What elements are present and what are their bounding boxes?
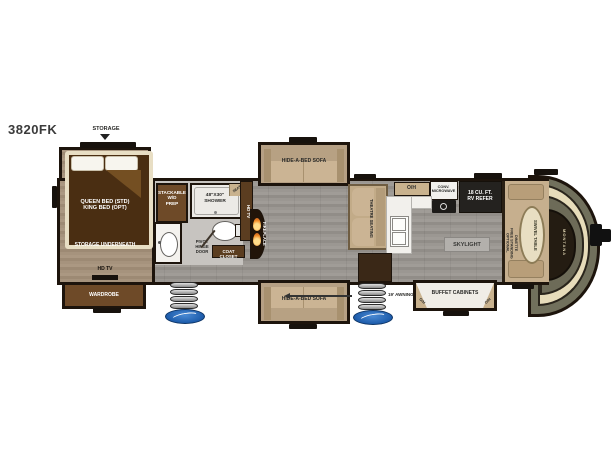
step — [170, 282, 198, 288]
slide-handle — [474, 173, 502, 179]
sofa-arm — [264, 149, 271, 182]
swivel-table-label: SWIVEL TABLE — [528, 210, 537, 260]
tv-icon — [92, 275, 118, 280]
model-number: 3820FK — [8, 122, 57, 137]
fireplace: FIREPLACE — [250, 209, 266, 259]
wardrobe-slideout: WARDROBE — [62, 282, 146, 309]
sofa-bottom-label: HIDE-A-BED SOFA — [264, 297, 344, 303]
entry-steps — [358, 283, 386, 308]
coat-closet: COAT CLOSET — [212, 245, 245, 258]
step — [170, 289, 198, 295]
slide-handle — [80, 142, 136, 148]
hitch-pin-tip — [600, 229, 611, 242]
shower-drain-icon — [214, 211, 217, 214]
slide-handle — [534, 169, 558, 175]
floorplan-canvas: 3820FK STORAGE MONTANA QUEEN BED (STD) K… — [0, 0, 614, 460]
step — [170, 296, 198, 302]
step — [358, 290, 386, 296]
bath-sink-icon — [160, 232, 178, 257]
theatre-seating: THEATRE SEATING — [348, 184, 388, 250]
wardrobe-label: WARDROBE — [65, 293, 143, 299]
fireplace-label: FIREPLACE — [259, 213, 266, 255]
sofa-arm — [337, 149, 344, 182]
awning-label: 19' AWNING — [388, 292, 426, 297]
skylight-label: SKYLIGHT — [445, 242, 489, 248]
recliner-back — [376, 188, 385, 246]
awning-line — [290, 295, 352, 297]
storage-underneath-label: STORAGE UNDERNEATH — [61, 243, 149, 249]
keystone-logo-icon — [165, 309, 205, 324]
bed-label: QUEEN BED (STD) KING BED (OPT) — [67, 199, 143, 212]
burner-icon — [440, 203, 447, 210]
cooktop-icon — [432, 200, 456, 213]
slide-handle — [443, 311, 469, 316]
washer-dryer-prep: STACKABLE W/D PREP — [156, 183, 188, 223]
slide-handle — [354, 174, 376, 179]
faucet-icon — [158, 241, 161, 244]
step — [358, 283, 386, 289]
coat-closet-label: COAT CLOSET — [213, 249, 244, 259]
slide-handle — [289, 137, 317, 143]
slide-handle — [52, 186, 57, 208]
storage-label: STORAGE — [84, 126, 128, 132]
sofa-arm — [337, 287, 344, 320]
refer-label: 18 CU. FT. RV REFER — [460, 191, 500, 203]
slide-handle — [512, 284, 534, 289]
blanket-fold — [106, 170, 141, 198]
logo-swoosh — [358, 312, 387, 326]
slide-handle — [93, 308, 121, 313]
sofa-top-label: HIDE-A-BED SOFA — [264, 159, 344, 165]
dinette-chair — [508, 184, 544, 200]
buffet-label: BUFFET CABINETS — [424, 291, 486, 297]
bedroom-tv-label: HD TV — [61, 267, 149, 273]
theatre-label: THEATRE SEATING — [361, 190, 373, 246]
dinette-option-label: OPTIONAL FREE STANDING DINETTE — [505, 210, 519, 276]
kitchen-counter-left — [386, 196, 412, 254]
brand-name: MONTANA — [556, 214, 566, 272]
kitchen-overhead-cabinet: O/H — [394, 182, 430, 196]
shower: 48"X30" SHOWER SEAT — [190, 183, 243, 219]
sofa-arm — [264, 287, 271, 320]
logo-swoosh — [170, 311, 199, 325]
sofa-slideout-top: HIDE-A-BED SOFA — [258, 142, 350, 186]
kitchen-peninsula — [358, 253, 392, 282]
keystone-logo-icon — [353, 310, 393, 325]
microwave-label: CONV. MICROWAVE — [431, 185, 456, 194]
sofa-back — [271, 308, 337, 320]
swivel-table: SWIVEL TABLE — [519, 206, 545, 264]
sink-basin-icon — [392, 232, 406, 245]
kitchen-oh-label: O/H — [395, 186, 428, 192]
entry-steps — [170, 282, 198, 307]
slide-handle — [289, 324, 317, 329]
microwave: CONV. MICROWAVE — [430, 181, 458, 200]
sofa-slideout-bottom: HIDE-A-BED SOFA — [258, 280, 350, 324]
pillow-icon — [105, 156, 138, 171]
bed: QUEEN BED (STD) KING BED (OPT) — [65, 151, 153, 249]
kitchen-sink — [390, 216, 409, 247]
pillow-icon — [71, 156, 104, 171]
wd-prep-label: STACKABLE W/D PREP — [158, 190, 186, 206]
bath-vanity — [154, 222, 182, 264]
sink-basin-icon — [392, 218, 406, 231]
refrigerator: 18 CU. FT. RV REFER — [459, 181, 502, 213]
storage-arrow-icon — [100, 134, 110, 140]
skylight: SKYLIGHT — [444, 237, 490, 252]
step — [358, 297, 386, 303]
